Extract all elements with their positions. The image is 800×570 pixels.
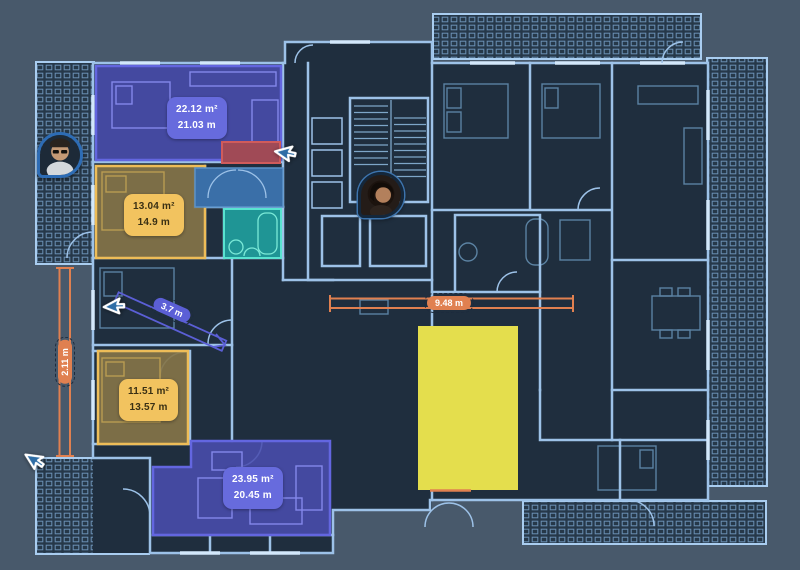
room-3-perimeter: 13.57 m: [129, 401, 167, 416]
collaborator-avatar-2[interactable]: [358, 172, 404, 218]
room-4-area: 23.95 m²: [232, 473, 274, 488]
room-3-area: 11.51 m²: [128, 385, 169, 400]
avatar-photo-female: [361, 175, 401, 215]
floor-plan[interactable]: [0, 0, 800, 570]
floorplan-canvas[interactable]: 22.12 m² 21.03 m 13.04 m² 14.9 m 11.51 m…: [0, 0, 800, 570]
avatar-photo-male: [40, 135, 80, 175]
room-1-area: 22.12 m²: [176, 103, 218, 118]
room-2-area: 13.04 m²: [133, 200, 175, 215]
bathroom-teal[interactable]: [224, 209, 281, 258]
room-1-perimeter: 21.03 m: [178, 119, 216, 134]
room-4-label[interactable]: 23.95 m² 20.45 m: [223, 467, 283, 509]
room-2-perimeter: 14.9 m: [138, 216, 170, 231]
room-1-label[interactable]: 22.12 m² 21.03 m: [167, 97, 227, 139]
vertical-measure-badge[interactable]: 2.11 m: [58, 340, 72, 384]
width-measure-badge[interactable]: 9.48 m: [427, 296, 471, 310]
hallway-blue[interactable]: [195, 168, 283, 207]
room-2-label[interactable]: 13.04 m² 14.9 m: [124, 194, 184, 236]
room-3-label[interactable]: 11.51 m² 13.57 m: [119, 379, 178, 421]
vertical-measure-value: 2.11 m: [60, 348, 70, 376]
collaborator-avatar-1[interactable]: [37, 132, 83, 178]
width-measure-value: 9.48 m: [435, 298, 463, 308]
yellow-block[interactable]: [418, 326, 518, 490]
room-4-perimeter: 20.45 m: [234, 489, 272, 504]
